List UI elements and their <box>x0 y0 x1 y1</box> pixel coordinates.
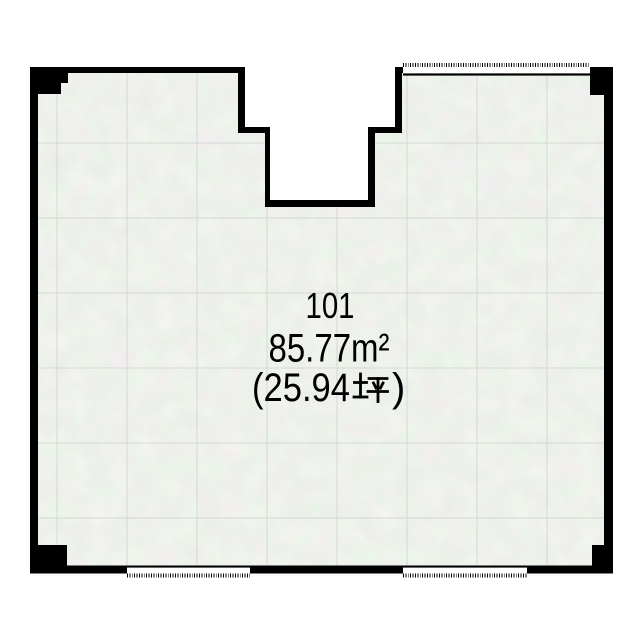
pillar-top-right <box>590 67 613 95</box>
tsubo-value-text: (25.94 <box>252 366 350 410</box>
pillar-bottom-right <box>592 545 613 574</box>
room-number-label: 101 <box>306 285 355 326</box>
window-inner-line <box>403 73 590 75</box>
pillar-bottom-left <box>30 545 67 574</box>
floorplan-canvas: 101 85.77m² (25.94 坪 ) <box>0 0 640 640</box>
window-opening-bottom-left <box>127 568 250 579</box>
window-opening-top <box>403 61 590 76</box>
floorplan-page: 101 85.77m² (25.94 坪 ) <box>0 0 640 640</box>
window-gap <box>127 568 250 579</box>
window-gap <box>403 568 527 579</box>
tsubo-close-paren: ) <box>392 366 405 410</box>
room-area-sqm-label: 85.77m² <box>269 327 390 371</box>
window-opening-bottom-right <box>403 568 527 579</box>
